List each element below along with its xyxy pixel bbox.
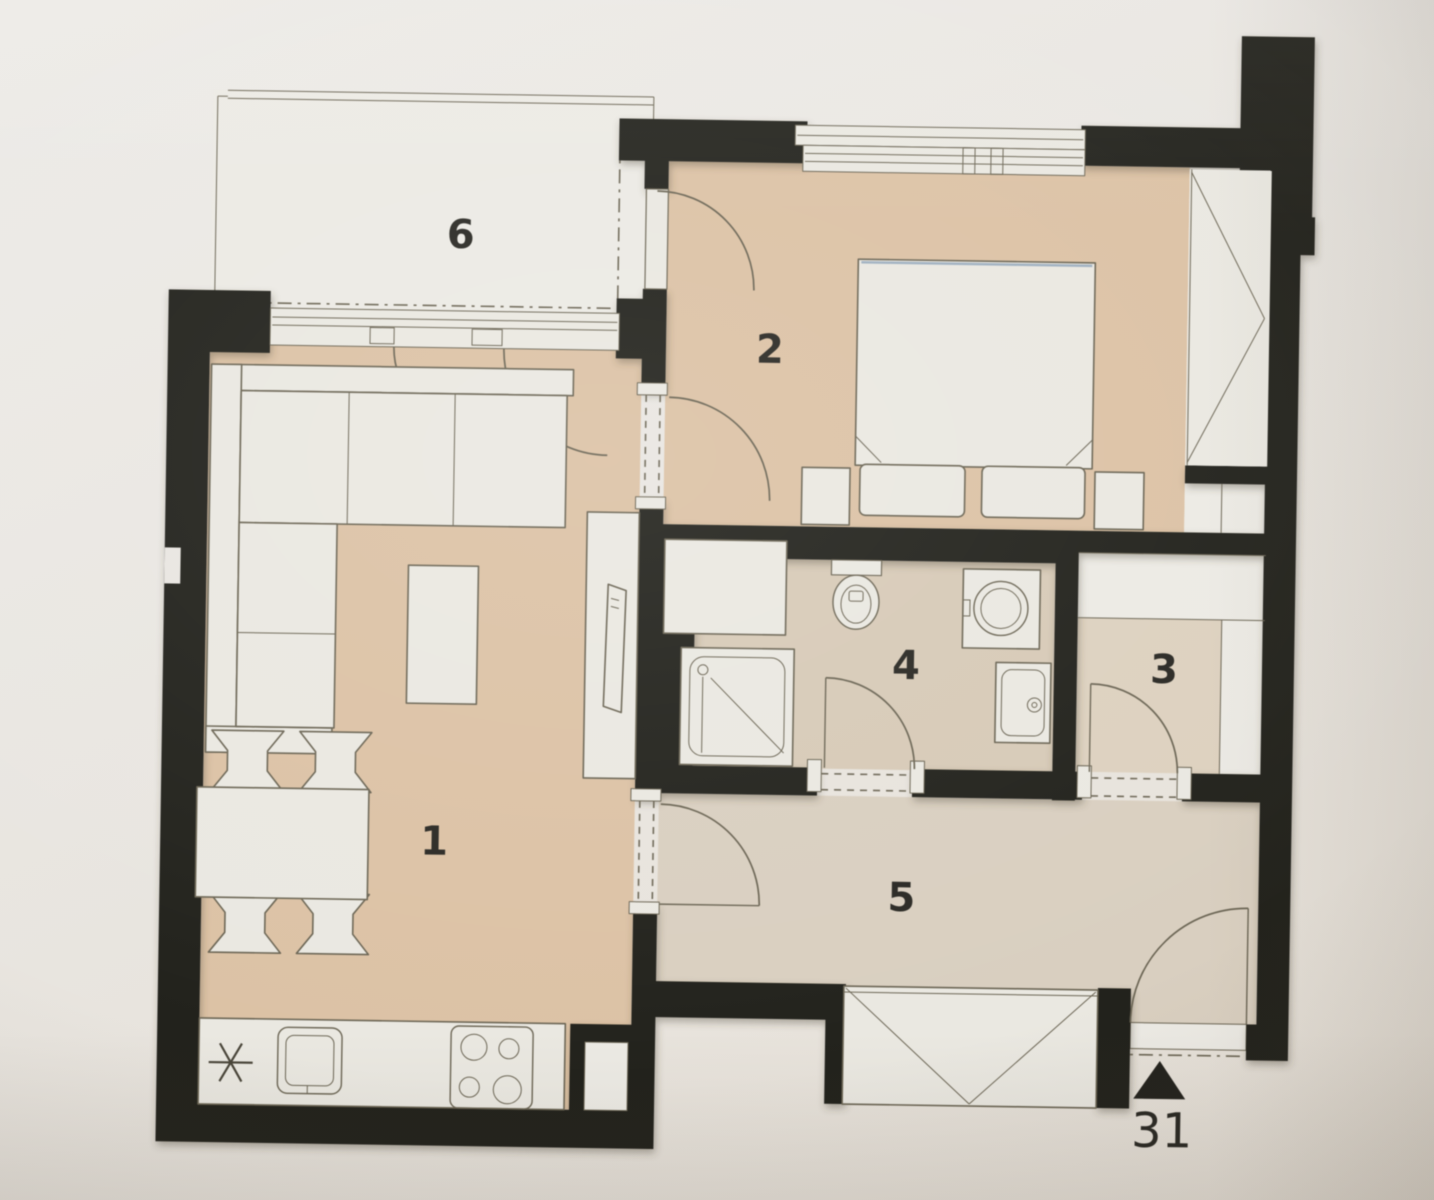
wall-col-a: [644, 159, 668, 189]
nightstand-right: [1094, 472, 1144, 530]
storage-closet-strip: [1219, 620, 1264, 775]
bedroom-wardrobe: [1185, 169, 1272, 466]
balcony-floor: [211, 90, 656, 314]
kitchen-shaft: [584, 1042, 628, 1111]
room-label-bathroom: 4: [892, 643, 921, 689]
wall-left-notch: [164, 547, 181, 583]
kitchen-counter: [198, 1018, 565, 1110]
dining-table: [195, 787, 369, 900]
wall-under-wardrobe: [1185, 465, 1267, 484]
coffee-table: [406, 565, 478, 704]
entry-exterior-dashline: [1130, 1055, 1246, 1057]
storage-floor: [1075, 618, 1221, 774]
bedroom-window: [795, 125, 1086, 176]
tv-sideboard: [583, 512, 639, 779]
floor-plan-svg: 1 2 3 4 5 6 31: [0, 0, 1434, 1200]
entry-threshold: [1130, 1023, 1246, 1051]
wall-stub-right: [1096, 988, 1131, 1109]
wall-right-notch: [1300, 217, 1315, 255]
balcony-door-threshold: [619, 188, 647, 288]
washing-machine-icon: [962, 569, 1040, 649]
nightstand-left: [801, 467, 850, 525]
tv: [603, 584, 626, 712]
wall-top-bedroom: [619, 118, 808, 163]
wall-hall-bottom: [641, 981, 826, 1020]
wall-bath-bottom-l: [659, 765, 817, 795]
entry-marker: 31: [1131, 1061, 1194, 1160]
toilet-icon: [831, 560, 882, 630]
washbasin-icon: [995, 662, 1051, 743]
room-label-storage: 3: [1150, 647, 1179, 693]
wall-bath-right: [1052, 530, 1079, 800]
storage-shelf-band: [1078, 553, 1266, 621]
unit-number: 31: [1131, 1103, 1193, 1160]
kitchen: [198, 1018, 565, 1110]
entrance-arrow-icon: [1133, 1061, 1186, 1100]
pillow: [859, 464, 965, 517]
pillow: [981, 466, 1085, 519]
storage-upper-nook: [1184, 483, 1267, 533]
floor-plan-photo: 1 2 3 4 5 6 31: [0, 0, 1434, 1200]
room-label-living: 1: [420, 818, 449, 864]
shower-icon: [679, 647, 794, 766]
wall-top-left: [168, 289, 271, 353]
wall-bath-bottom-r: [912, 769, 1082, 800]
room-label-hallway: 5: [887, 875, 916, 921]
room-label-bedroom: 2: [756, 327, 785, 373]
room-label-balcony: 6: [446, 212, 475, 258]
wall-storage-top: [1079, 531, 1266, 556]
hallway-wardrobe: [842, 986, 1098, 1108]
wall-col-b: [641, 289, 667, 391]
bathroom-cabinet: [663, 539, 786, 635]
